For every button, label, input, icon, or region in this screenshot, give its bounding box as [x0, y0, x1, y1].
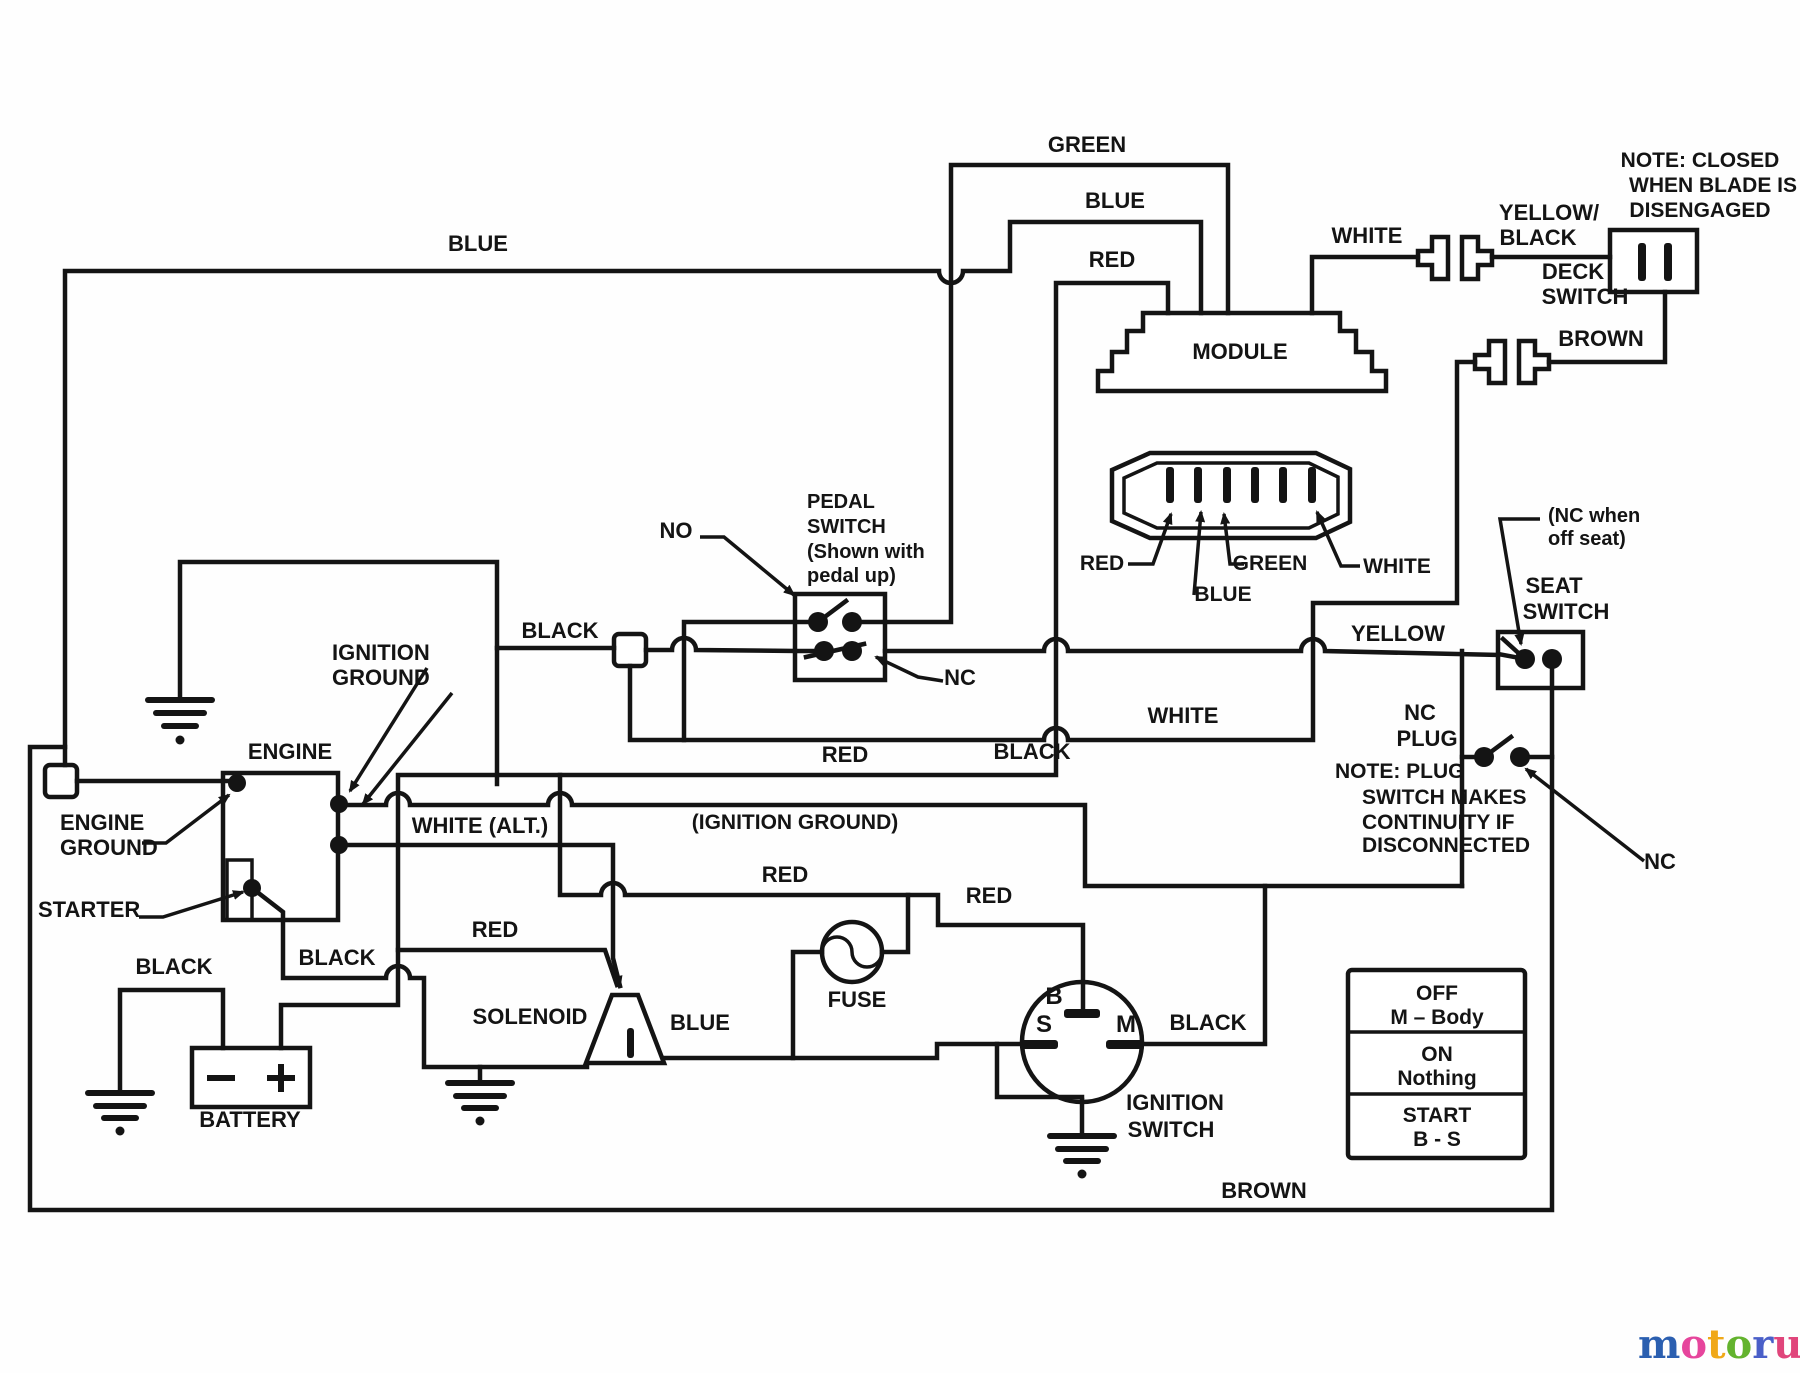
wire-label-black-battery: BLACK — [136, 954, 213, 979]
wire-label-yellow-black-1: YELLOW/ — [1499, 200, 1599, 225]
note-blade-line-3: DISENGAGED — [1629, 199, 1770, 222]
nc-plug-label-2: PLUG — [1396, 726, 1457, 751]
wire-white-deck-left — [1312, 257, 1418, 313]
seat-contact-dot — [1542, 649, 1562, 669]
ignition-switch-label-2: SWITCH — [1128, 1117, 1215, 1142]
engine-label: ENGINE — [248, 739, 332, 764]
wire-label-white-top: WHITE — [1332, 223, 1403, 248]
plug-contact-dot — [1510, 747, 1530, 767]
wire-label-green-top: GREEN — [1048, 132, 1126, 157]
pedal-contact-dot — [842, 641, 862, 661]
ignition-ground-label-2: GROUND — [332, 665, 430, 690]
ignition-ground-label-1: IGNITION — [332, 640, 430, 665]
table-start-contacts: B - S — [1413, 1128, 1461, 1151]
solenoid-core — [627, 1028, 634, 1058]
pedal-switch-label-2: SWITCH — [807, 516, 886, 538]
wire-label-black-upper: BLACK — [994, 739, 1071, 764]
logo-letter: o — [1680, 1321, 1707, 1368]
table-start-position: START — [1403, 1104, 1472, 1127]
note-blade-line-1: NOTE: CLOSED — [1621, 149, 1780, 172]
deck-switch-label-1: DECK — [1542, 259, 1604, 284]
nc-far-label: NC — [1644, 849, 1676, 874]
wire-black-pedal — [646, 638, 795, 651]
wire-fuse-left-loop — [793, 952, 822, 1058]
battery-ground-symbol — [88, 1093, 152, 1136]
wire-blue-solenoid-s — [664, 1044, 1022, 1058]
wire-label-blue-left: BLUE — [448, 231, 508, 256]
engine-ground-label-2: GROUND — [60, 835, 158, 860]
terminal-m — [1106, 1040, 1143, 1049]
wire-white-run — [630, 362, 1475, 740]
note-plug-line-2: SWITCH MAKES — [1362, 786, 1527, 809]
wire-label-white-alt: WHITE (ALT.) — [412, 813, 548, 838]
logo-letter: u — [1773, 1321, 1800, 1368]
wire-label-yellow-black-2: BLACK — [1500, 225, 1577, 250]
engine-ground-label-1: ENGINE — [60, 810, 144, 835]
ignition-switch-label-1: IGNITION — [1126, 1090, 1224, 1115]
table-off-position: OFF — [1416, 982, 1458, 1005]
inline-connector-brown-right — [1519, 341, 1549, 383]
note-plug-line-4: DISCONNECTED — [1362, 834, 1530, 857]
deck-switch-box — [1610, 230, 1697, 292]
wire-label-black-m: BLACK — [1170, 1010, 1247, 1035]
nc-plug-label-1: NC — [1404, 700, 1436, 725]
wire-label-red-solenoid: RED — [472, 917, 518, 942]
pedal-contact-dot — [842, 612, 862, 632]
table-on-position: ON — [1421, 1043, 1453, 1066]
plug-contact-dot — [1474, 747, 1494, 767]
note-plug-line-3: CONTINUITY IF — [1362, 811, 1515, 834]
junction-dot — [228, 774, 246, 792]
wire-label-black-mid: BLACK — [522, 618, 599, 643]
wire-label-brown-bottom: BROWN — [1221, 1178, 1307, 1203]
battery-label: BATTERY — [199, 1107, 301, 1132]
nc-pedal-label: NC — [944, 665, 976, 690]
battery-minus-symbol — [207, 1075, 235, 1081]
wire-label-blue-bottom: BLUE — [670, 1010, 730, 1035]
motoruf-logo: motoruf.de — [1638, 1321, 1800, 1368]
ignition-ground-symbol — [1050, 1136, 1114, 1179]
engine-box — [223, 773, 338, 920]
seat-switch-label-2: SWITCH — [1523, 599, 1610, 624]
inline-connector-brown-left — [1475, 341, 1505, 383]
wire-label-red-b: RED — [966, 883, 1012, 908]
seat-note-line-1: (NC when — [1548, 505, 1640, 527]
junction-connector-left — [45, 765, 77, 797]
deck-switch-label-2: SWITCH — [1542, 284, 1629, 309]
engine-ground-symbol — [148, 700, 212, 745]
terminal-m-label: M — [1116, 1011, 1136, 1038]
pedal-switch-label-3: (Shown with — [807, 541, 925, 563]
logo-letter: m — [1638, 1321, 1680, 1368]
terminal-s — [1021, 1040, 1058, 1049]
terminal-b — [1064, 1009, 1100, 1018]
solenoid-label: SOLENOID — [473, 1004, 588, 1029]
pedal-contact-dot — [808, 612, 828, 632]
note-plug-line-1: NOTE: PLUG — [1335, 760, 1465, 783]
logo-letter: o — [1726, 1321, 1753, 1368]
no-contact-label: NO — [660, 518, 693, 543]
module-label: MODULE — [1192, 339, 1287, 364]
solenoid-body — [586, 995, 664, 1063]
deck-switch-pin — [1638, 243, 1646, 281]
ignition-ground-paren-label: (IGNITION GROUND) — [692, 811, 898, 834]
solenoid-ground-symbol — [448, 1083, 512, 1126]
wire-ignition-ground-run — [339, 793, 1462, 886]
wire-red-fuse-drop — [882, 895, 908, 952]
junction-dot — [330, 795, 348, 813]
pin-label-blue: BLUE — [1194, 583, 1251, 606]
pin-label-white: WHITE — [1363, 555, 1431, 578]
logo-letter: r — [1752, 1321, 1774, 1368]
deck-switch-pin — [1664, 243, 1672, 281]
note-blade-line-2: WHEN BLADE IS — [1629, 174, 1797, 197]
starter-contact-dot — [243, 879, 261, 897]
junction-connector-mid — [614, 634, 646, 666]
starter-label: STARTER — [38, 897, 140, 922]
logo-letter: t — [1707, 1321, 1726, 1368]
wire-label-white-mid: WHITE — [1148, 703, 1219, 728]
switch-position-table-text: OFF M – Body ON Nothing START B - S — [1390, 982, 1484, 1151]
wire-label-yellow: YELLOW — [1351, 621, 1445, 646]
inline-connector-white-left — [1418, 237, 1448, 279]
pin-label-red: RED — [1080, 552, 1124, 575]
terminal-b-label: B — [1045, 983, 1062, 1010]
terminal-s-label: S — [1036, 1011, 1052, 1038]
leader-no — [700, 537, 794, 595]
leader-nc-far — [1526, 769, 1644, 861]
pedal-switch-label-4: pedal up) — [807, 565, 896, 587]
wire-label-red-mid: RED — [822, 742, 868, 767]
wire-label-red-top: RED — [1089, 247, 1135, 272]
wire-label-brown-top: BROWN — [1558, 326, 1644, 351]
table-off-contacts: M – Body — [1390, 1006, 1484, 1029]
table-on-contacts: Nothing — [1397, 1067, 1476, 1090]
wire-label-black-starter: BLACK — [299, 945, 376, 970]
pin-label-green: GREEN — [1233, 552, 1308, 575]
pedal-switch-label-1: PEDAL — [807, 491, 875, 513]
pedal-contact-dot — [814, 641, 834, 661]
wire-blue-long — [65, 222, 1201, 765]
wiring-diagram-page: OFF M – Body ON Nothing START B - S GREE… — [0, 0, 1800, 1373]
seat-switch-box — [1498, 632, 1583, 688]
seat-switch-label-1: SEAT — [1525, 573, 1583, 598]
junction-dot — [330, 836, 348, 854]
wire-white-alt — [339, 845, 620, 986]
wire-red-solenoid — [398, 950, 617, 985]
wire-label-blue-top: BLUE — [1085, 188, 1145, 213]
inline-connector-white-right — [1462, 237, 1492, 279]
seat-contact-dot — [1515, 649, 1535, 669]
fuse-label: FUSE — [828, 987, 887, 1012]
wire-label-red-fuse: RED — [762, 862, 808, 887]
seat-note-line-2: off seat) — [1548, 528, 1626, 550]
wiring-diagram: OFF M – Body ON Nothing START B - S GREE… — [0, 0, 1800, 1373]
